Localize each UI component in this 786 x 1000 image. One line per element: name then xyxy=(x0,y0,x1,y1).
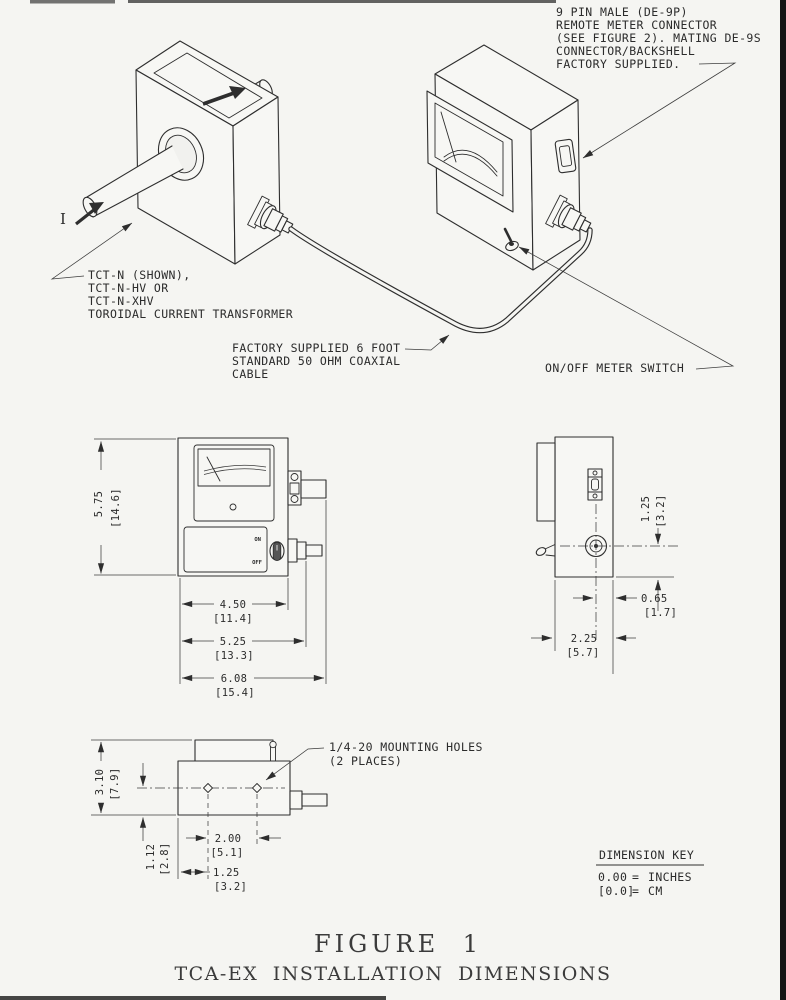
dimension-key-row: [0.0] = CM xyxy=(598,884,663,898)
key-equals: = xyxy=(632,884,639,898)
dim-offset-in: 0.65 xyxy=(641,593,668,605)
note-line: CABLE xyxy=(232,367,269,381)
note-line: TOROIDAL CURRENT TRANSFORMER xyxy=(88,307,293,321)
note-line: 9 PIN MALE (DE-9P) xyxy=(556,5,688,19)
dim-depth-cm: [7.9] xyxy=(109,767,121,800)
side-de9-connector xyxy=(588,469,602,500)
figure-1-drawing: I xyxy=(0,0,786,1000)
dim-spacing-cm: [5.1] xyxy=(210,847,243,859)
dim-depth-cm: [5.7] xyxy=(566,647,599,659)
note-line: FACTORY SUPPLIED 6 FOOT xyxy=(232,341,400,355)
figure-subtitle: TCA-EX INSTALLATION DIMENSIONS xyxy=(174,963,611,985)
de9-connector-iso xyxy=(555,139,576,173)
note-line: TCT-N-HV OR xyxy=(88,281,169,295)
figure-title: FIGURE 1 xyxy=(314,930,482,958)
dim-edge-cm: [2.8] xyxy=(159,842,171,875)
manual-page: I xyxy=(0,0,786,1000)
key-unit: CM xyxy=(648,884,663,898)
note-line: (2 PLACES) xyxy=(329,754,402,768)
dim-offset-cm: [1.7] xyxy=(644,607,677,619)
note-line: CONNECTOR/BACKSHELL xyxy=(556,44,695,58)
switch-on-label: ON xyxy=(254,537,261,543)
dimension-key-title: DIMENSION KEY xyxy=(599,848,694,862)
dim-w2-cm: [13.3] xyxy=(214,650,254,662)
dim-w1-in: 4.50 xyxy=(220,599,247,611)
key-code: [0.0] xyxy=(598,884,635,898)
dim-w3-cm: [15.4] xyxy=(215,687,255,699)
dim-depth-in: 2.25 xyxy=(571,633,598,645)
dim-height-in: 5.75 xyxy=(93,491,105,518)
dim-depth-in: 3.10 xyxy=(94,769,106,796)
dim-height-cm: [14.6] xyxy=(110,488,122,528)
dim-spacing-in: 2.00 xyxy=(215,833,242,845)
dim-edge-in: 1.12 xyxy=(145,844,157,871)
key-equals: = xyxy=(632,870,639,884)
dim-bnc-in: 1.25 xyxy=(640,496,652,523)
bottom-toggle-switch xyxy=(270,741,276,761)
bottom-bnc-connector xyxy=(290,791,327,809)
switch-off-label: OFF xyxy=(252,560,262,566)
note-line: (SEE FIGURE 2). MATING DE-9S xyxy=(556,31,761,45)
front-toggle-switch xyxy=(270,542,284,561)
note-line: TCT-N (SHOWN), xyxy=(88,268,191,282)
current-label: I xyxy=(60,210,66,228)
note-line: FACTORY SUPPLIED. xyxy=(556,57,681,71)
key-code: 0.00 xyxy=(598,870,627,884)
dim-w3-in: 6.08 xyxy=(221,673,248,685)
dim-end-cm: [3.2] xyxy=(214,881,247,893)
side-enclosure xyxy=(555,437,613,577)
dim-w1-cm: [11.4] xyxy=(213,613,253,625)
note-line: STANDARD 50 OHM COAXIAL xyxy=(232,354,400,368)
note-line: TCT-N-XHV xyxy=(88,294,154,308)
bottom-bezel xyxy=(195,740,273,761)
note-line: 1/4-20 MOUNTING HOLES xyxy=(329,740,483,754)
switch-note: ON/OFF METER SWITCH xyxy=(545,361,684,375)
note-line: REMOTE METER CONNECTOR xyxy=(556,18,717,32)
dim-bnc-cm: [3.2] xyxy=(655,494,667,527)
side-bezel xyxy=(537,443,555,521)
dim-w2-in: 5.25 xyxy=(220,636,247,648)
dim-end-in: 1.25 xyxy=(213,867,240,879)
key-unit: INCHES xyxy=(648,870,692,884)
